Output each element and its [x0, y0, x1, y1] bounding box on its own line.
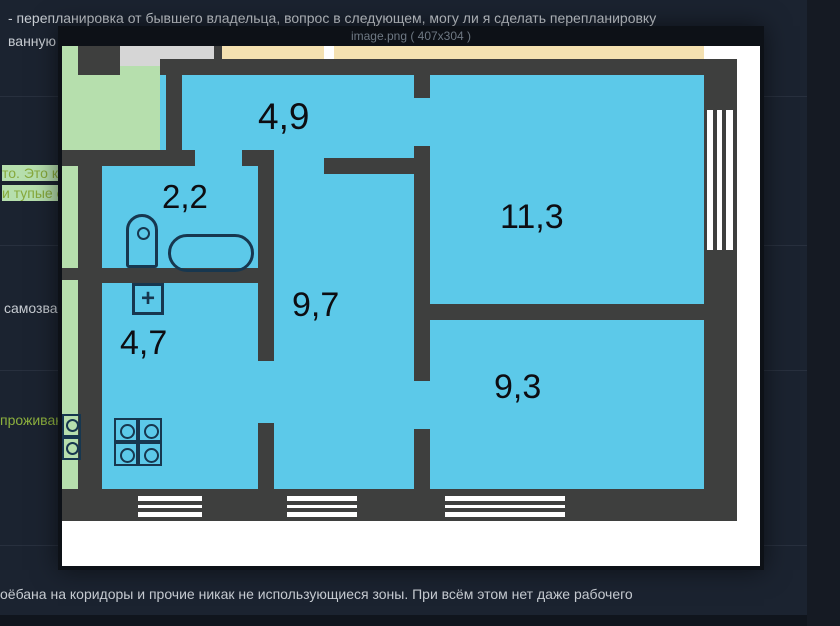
- room-label-room-small: 9,3: [494, 368, 541, 407]
- wall-segment: [214, 46, 222, 59]
- wall-segment: [62, 268, 78, 280]
- chat-message-top: - перепланировка от бывшего владельца, в…: [8, 10, 656, 26]
- loggia-strip-1: [222, 46, 324, 59]
- window-bottom-2: [287, 496, 357, 517]
- chat-message-fragment: проживан: [0, 412, 63, 428]
- chat-message-fragment: самозван: [4, 300, 65, 316]
- window-right: [707, 110, 733, 250]
- image-preview-modal: image.png ( 407x304 ): [58, 26, 764, 570]
- room-label-kitchen: 4,7: [120, 324, 167, 363]
- sink-icon: +: [132, 283, 164, 315]
- chat-message-top-continued: ванную: [8, 33, 56, 49]
- floor-plan-image[interactable]: + 4,9 2,2 9,7 11,3 4,7 9,3: [62, 46, 760, 566]
- balcony-block: [62, 66, 160, 150]
- balcony-corner: [62, 46, 78, 66]
- wall-segment: [258, 150, 274, 361]
- stove-icon: [114, 418, 162, 466]
- room-label-hallway-top: 4,9: [258, 96, 309, 138]
- wall-segment: [78, 150, 102, 489]
- wall-segment: [414, 146, 430, 381]
- window-bottom-1: [138, 496, 202, 517]
- loggia-strip-2: [334, 46, 704, 59]
- wall-segment: [414, 429, 430, 489]
- image-filename-title: image.png ( 407x304 ): [58, 26, 764, 46]
- right-gutter: [807, 0, 840, 626]
- chat-message-fragment: то. Это к: [2, 165, 58, 181]
- chat-message-fragment: и тупые с: [2, 185, 64, 201]
- room-label-hallway-main: 9,7: [292, 286, 339, 325]
- chat-message-bottom: оёбана на коридоры и прочие никак не исп…: [0, 586, 633, 602]
- wall-segment: [166, 75, 182, 150]
- room-label-room-large: 11,3: [500, 198, 564, 237]
- wall-segment: [324, 158, 414, 174]
- wall-segment: [160, 59, 722, 75]
- wall-segment: [414, 75, 430, 98]
- wall-segment: [258, 423, 274, 489]
- wall-segment: [430, 304, 704, 320]
- room-label-bathroom: 2,2: [162, 178, 208, 216]
- toilet-icon: [126, 214, 158, 268]
- floor-plan: + 4,9 2,2 9,7 11,3 4,7 9,3: [62, 46, 760, 566]
- bathtub-icon: [168, 234, 254, 272]
- bottom-bar: [0, 615, 807, 626]
- balcony-burner-icon: [62, 414, 81, 460]
- wall-segment: [78, 46, 120, 75]
- window-bottom-3: [445, 496, 565, 517]
- balcony-strip-upper: [62, 166, 78, 268]
